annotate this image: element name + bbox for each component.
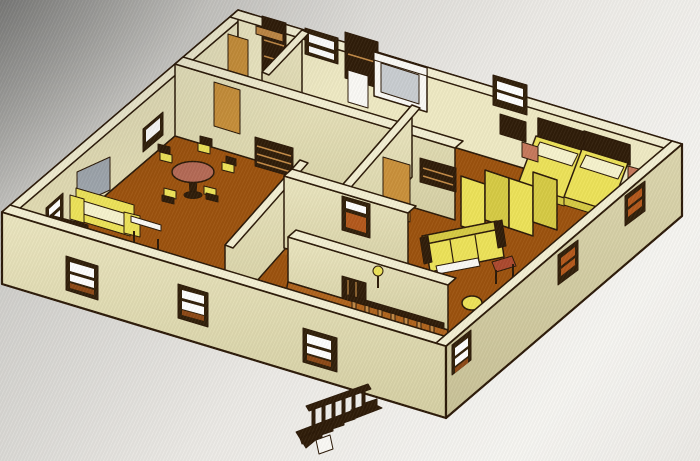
- floorplan-rendering: Photographed computer screen showing a 3…: [0, 0, 700, 461]
- white-cabinet: [348, 70, 368, 108]
- tv-niche: [342, 196, 370, 238]
- dining-chair: [198, 136, 212, 154]
- screen-photo: Photographed computer screen showing a 3…: [0, 0, 700, 461]
- storage-room: [348, 70, 368, 108]
- door-dining-kitchen: [214, 82, 240, 134]
- dining-chair: [162, 188, 176, 204]
- dining-chair: [158, 144, 172, 163]
